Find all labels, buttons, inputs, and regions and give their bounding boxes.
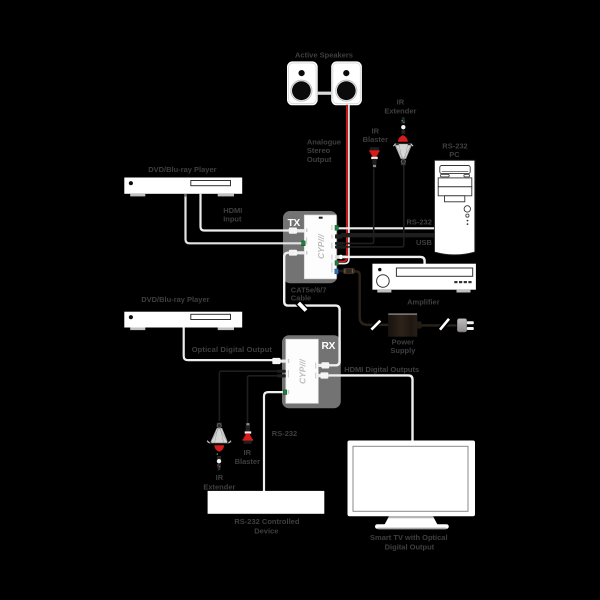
svg-text:Input: Input bbox=[223, 215, 242, 224]
svg-text:IR: IR bbox=[244, 448, 252, 457]
svg-text:Extender: Extender bbox=[203, 483, 235, 492]
svg-text:PC: PC bbox=[449, 150, 460, 159]
svg-text:USB: USB bbox=[416, 238, 432, 247]
svg-text:Device: Device bbox=[254, 527, 278, 536]
svg-text:Output: Output bbox=[307, 155, 332, 164]
svg-text:Amplifier: Amplifier bbox=[407, 297, 440, 306]
svg-text:Active Speakers: Active Speakers bbox=[295, 50, 353, 59]
svg-text:Optical Digital Output: Optical Digital Output bbox=[192, 345, 273, 354]
svg-text:Blaster: Blaster bbox=[363, 135, 389, 144]
svg-text:Supply: Supply bbox=[390, 346, 416, 355]
svg-text:RX: RX bbox=[322, 341, 336, 352]
svg-text:Extender: Extender bbox=[384, 106, 416, 115]
svg-text:HDMI Digital Outputs: HDMI Digital Outputs bbox=[344, 365, 419, 374]
svg-text:IR: IR bbox=[216, 473, 224, 482]
svg-text:RS-232: RS-232 bbox=[406, 218, 431, 227]
svg-text:Digital Output: Digital Output bbox=[385, 542, 435, 551]
svg-text:RS-232: RS-232 bbox=[272, 429, 297, 438]
svg-text:CYP///: CYP/// bbox=[297, 358, 307, 384]
svg-text:Cable: Cable bbox=[291, 294, 311, 303]
svg-text:DVD/Blu-ray Player: DVD/Blu-ray Player bbox=[141, 295, 209, 304]
svg-text:RS-232 Controlled: RS-232 Controlled bbox=[234, 517, 299, 526]
svg-text:Smart TV with Optical: Smart TV with Optical bbox=[370, 533, 448, 542]
svg-text:DVD/Blu-ray Player: DVD/Blu-ray Player bbox=[148, 165, 216, 174]
svg-text:CYP///: CYP/// bbox=[316, 233, 326, 259]
svg-text:Blaster: Blaster bbox=[235, 457, 261, 466]
